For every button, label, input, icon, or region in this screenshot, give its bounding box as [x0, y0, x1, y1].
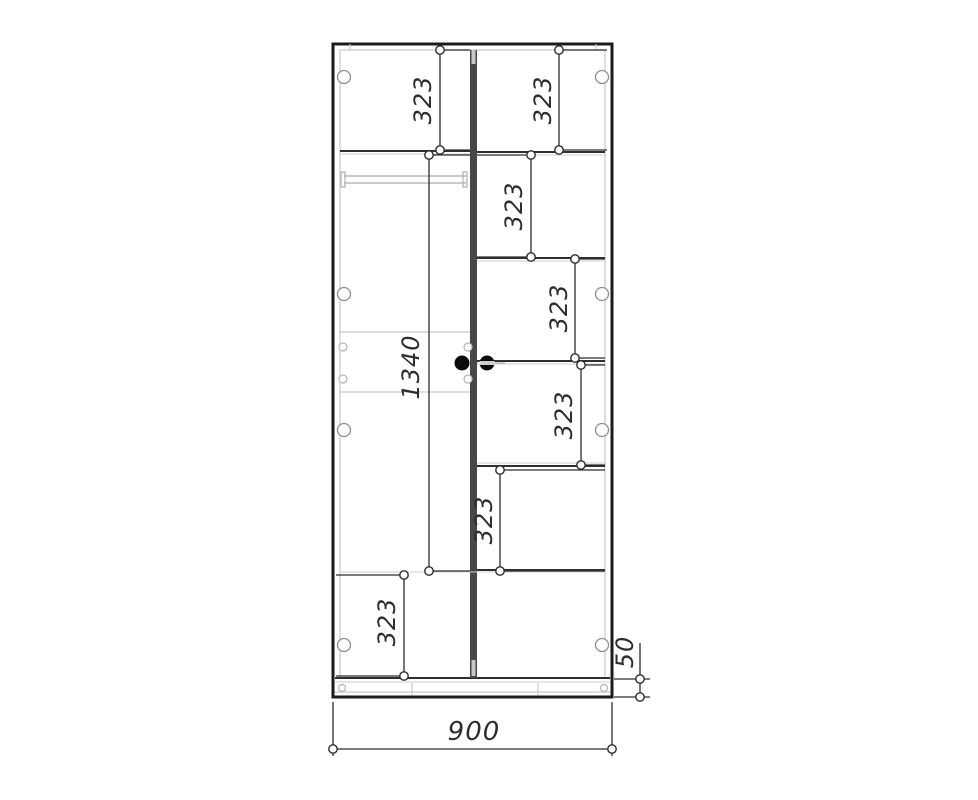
dim-label-overall-width: 900: [448, 717, 501, 747]
dim-right-fourth: 323: [550, 361, 605, 469]
plinth-fitting-left: [339, 685, 346, 692]
hinge-mark-left-1: [338, 71, 351, 84]
dim-right-third: 323: [545, 255, 605, 362]
dim-left-top: 323: [409, 46, 470, 154]
dim-label-plinth-height: 50: [611, 636, 639, 669]
pin-mark-left-wall-lower: [339, 375, 347, 383]
pin-mark-left-wall-upper: [339, 343, 347, 351]
center-divider-bottom-cap: [472, 660, 476, 676]
center-divider: [470, 50, 477, 678]
hanging-rod: [341, 172, 467, 187]
dim-overall-width: 900: [329, 702, 616, 756]
dim-left-bottom: 323: [336, 571, 408, 680]
right-door-handle: [480, 356, 506, 371]
dim-label-right-fifth: 323: [470, 496, 498, 545]
hinge-mark-right-2: [596, 288, 609, 301]
pin-mark-divider-lower: [464, 375, 472, 383]
hinge-mark-right-1: [596, 71, 609, 84]
wardrobe-front-elevation: 323 323 323 323 323: [0, 0, 978, 800]
dim-label-right-third: 323: [545, 284, 573, 333]
hinge-mark-right-4: [596, 639, 609, 652]
dim-label-right-fourth: 323: [550, 391, 578, 440]
dim-right-fifth: 323: [470, 466, 605, 575]
pin-mark-divider-upper: [464, 343, 472, 351]
center-divider-top-cap: [472, 50, 476, 64]
dim-right-second: 323: [477, 151, 535, 261]
dim-label-left-bottom: 323: [373, 598, 401, 647]
plinth-fitting-right: [601, 685, 608, 692]
dim-label-left-top: 323: [409, 76, 437, 125]
dim-plinth-height: 50: [611, 636, 650, 701]
hinge-mark-left-4: [338, 639, 351, 652]
hinge-mark-right-3: [596, 424, 609, 437]
hinge-mark-left-3: [338, 424, 351, 437]
dim-label-left-middle: 1340: [397, 334, 425, 399]
dim-label-right-top: 323: [529, 76, 557, 125]
hinge-mark-left-2: [338, 288, 351, 301]
dim-right-top: 323: [529, 46, 607, 154]
left-door-handle: [455, 356, 470, 371]
dim-label-right-second: 323: [500, 182, 528, 231]
drawing-canvas: 323 323 323 323 323: [0, 0, 978, 800]
